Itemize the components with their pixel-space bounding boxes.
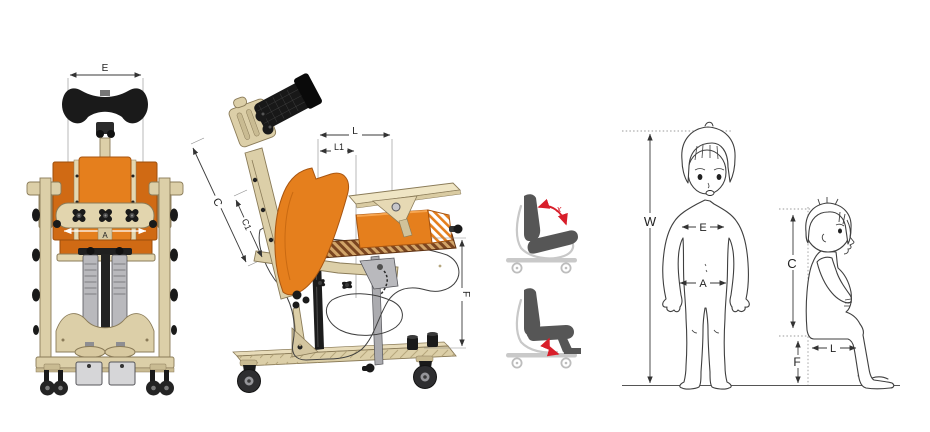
recline-angle-label: x xyxy=(556,204,562,214)
dim-label-w: W xyxy=(644,214,657,229)
product-dimensions-diagram: E xyxy=(0,0,930,432)
stander-side-view: C C1 L L1 F xyxy=(191,72,471,392)
standing-face xyxy=(688,150,726,194)
dim-label-l-sitting: L xyxy=(830,343,836,355)
dimension-f-sitting: F xyxy=(790,341,805,383)
dimension-w-standing: W xyxy=(641,134,659,383)
child-sitting-figure: C F L xyxy=(779,197,894,389)
dimension-c-sitting: C xyxy=(784,215,801,328)
headrest-front xyxy=(62,88,148,138)
pictogram-backrest xyxy=(524,194,540,241)
stander-front-view: E xyxy=(27,63,183,396)
dim-label-l-side: L xyxy=(352,126,358,137)
back-assembly-side xyxy=(245,148,349,304)
dim-label-e-front: E xyxy=(102,63,109,74)
dim-label-a-standing: A xyxy=(699,278,707,290)
dim-label-e-standing: E xyxy=(699,222,706,234)
diagram-svg: E xyxy=(0,0,930,432)
dim-label-l1-side: L1 xyxy=(334,142,344,152)
back-cushion-side xyxy=(275,168,349,295)
dimension-l1-side: L1 xyxy=(320,142,354,152)
dim-label-f-sitting: F xyxy=(793,355,800,369)
pictogram-backrest-recline: x xyxy=(506,194,578,272)
pictogram-footrest-angle xyxy=(506,288,581,367)
caster-side-front xyxy=(414,356,437,389)
recline-arrow xyxy=(539,206,566,224)
dim-label-a-front: A xyxy=(102,231,108,240)
caster-side-rear xyxy=(238,360,261,393)
adjustment-crossbar xyxy=(56,203,154,228)
dimension-l-sitting: L xyxy=(812,341,856,355)
pictogram-footplate xyxy=(563,348,581,354)
dimension-l-side: L xyxy=(320,126,390,137)
dim-label-f-side: F xyxy=(460,291,471,297)
dimension-f-side: F xyxy=(424,238,471,348)
dim-label-c-sitting: C xyxy=(787,256,796,271)
